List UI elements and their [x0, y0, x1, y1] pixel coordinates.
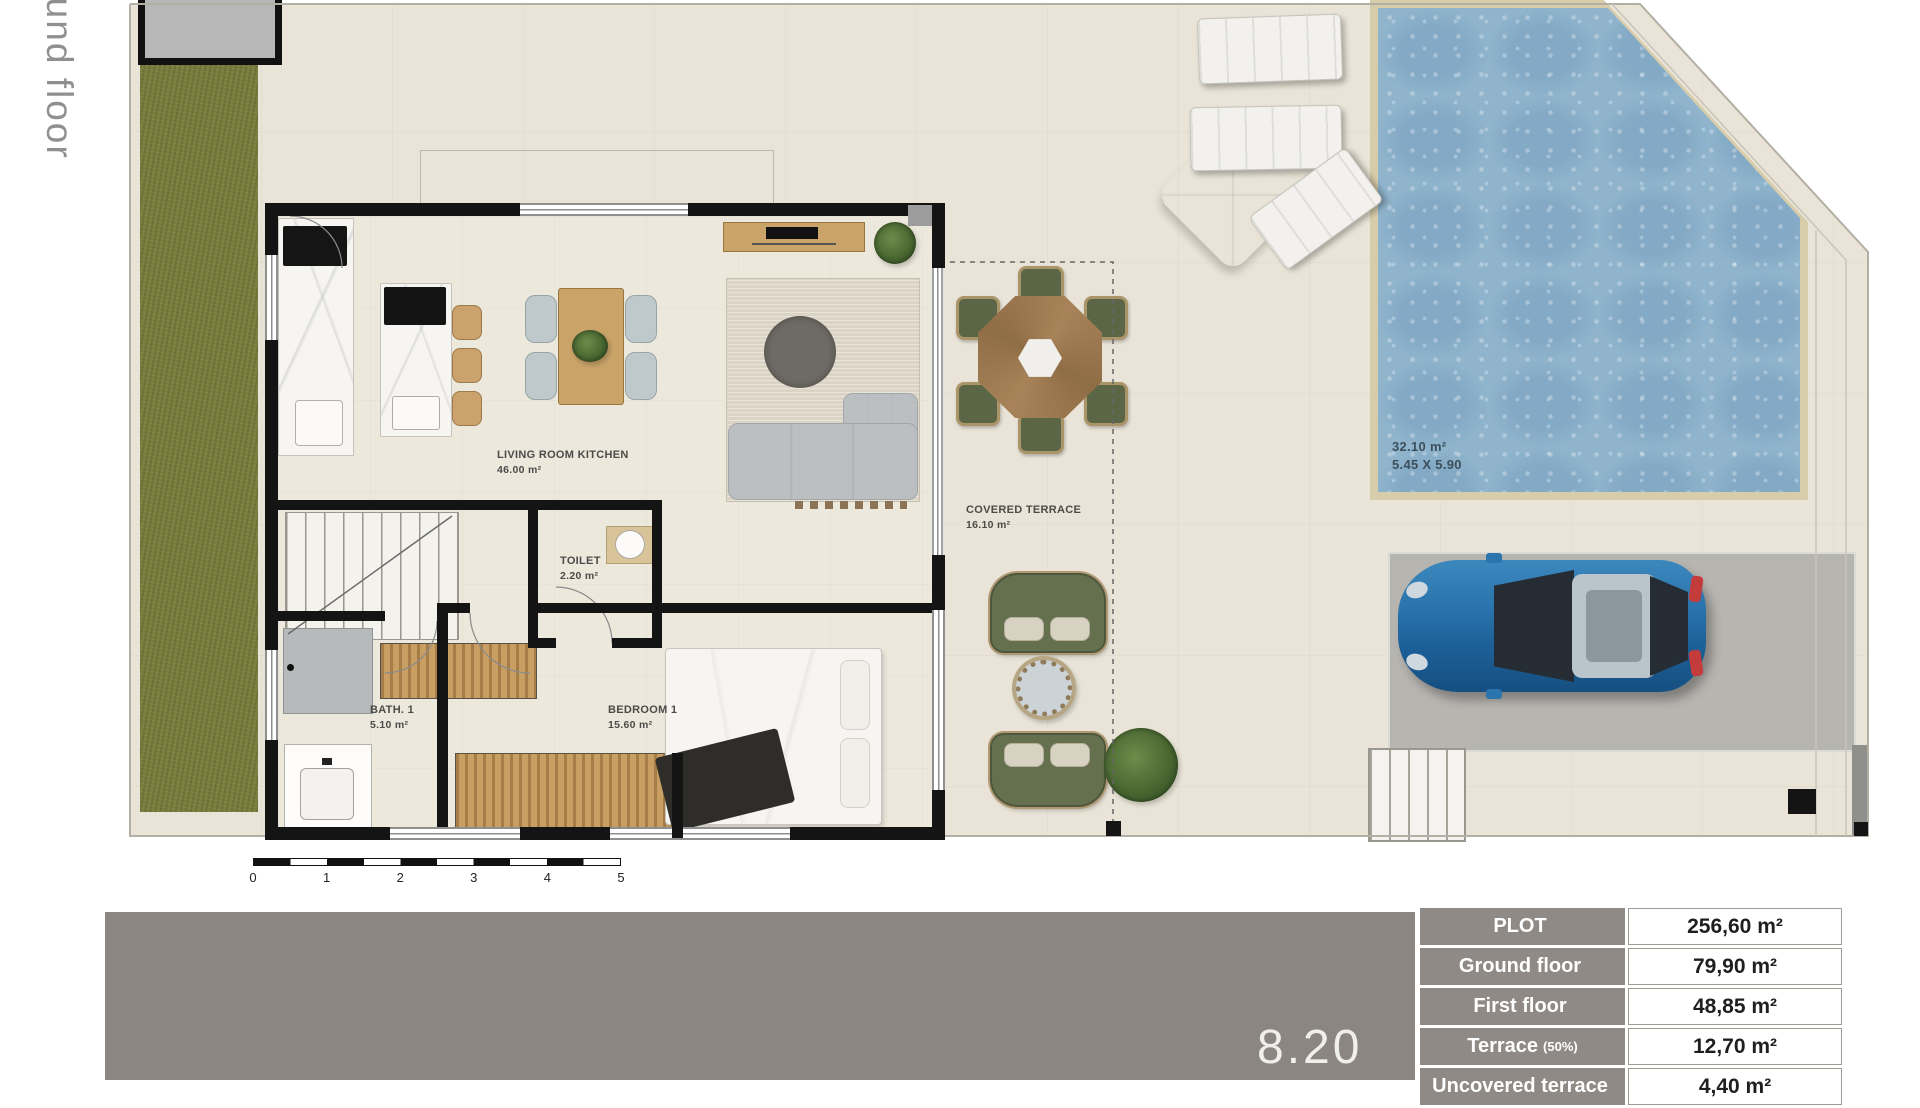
loveseat1-cushion-1 — [1004, 617, 1044, 641]
sun-lounger-1 — [1197, 14, 1343, 85]
bath-sink — [300, 768, 354, 820]
label-living-room: LIVING ROOM KITCHEN 46.00 m² — [497, 448, 629, 478]
table-row: Ground floor 79,90 m² — [1420, 948, 1845, 985]
floor-name-vertical-label: Ground floor — [38, 0, 80, 160]
window-bottom-2 — [610, 827, 790, 840]
dining-chair-3 — [625, 295, 657, 343]
scale-tick-2: 2 — [397, 870, 404, 885]
sun-lounger-2 — [1189, 105, 1342, 172]
car-sunroof — [1586, 590, 1642, 662]
wall-bottom-3 — [790, 827, 945, 840]
side-table-top — [1016, 660, 1072, 716]
entry-utility-block — [138, 0, 282, 65]
wardrobe-top — [380, 643, 537, 699]
window-kitchen — [265, 255, 278, 340]
pillow-1 — [840, 660, 870, 730]
wall-wardrobe-stub — [672, 753, 683, 838]
label-toilet: TOILET 2.20 m² — [560, 554, 601, 584]
table-plant — [572, 330, 608, 362]
label-bedroom: BEDROOM 1 15.60 m² — [608, 703, 677, 733]
bar-stool-1 — [452, 305, 482, 340]
pool-area: 32.10 m² — [1392, 438, 1462, 456]
boundary-block — [1788, 789, 1816, 814]
bar-stool-3 — [452, 391, 482, 426]
table-row: First floor 48,85 m² — [1420, 988, 1845, 1025]
scale-tick-5: 5 — [617, 870, 624, 885]
dining-chair-1 — [525, 295, 557, 343]
pool-dimensions: 5.45 X 5.90 — [1392, 456, 1462, 474]
label-bath: BATH. 1 5.10 m² — [370, 703, 414, 733]
floorplan-page: Ground floor 32.10 m² 5.45 X 5.90 — [0, 0, 1920, 1080]
loveseat-2 — [990, 733, 1106, 807]
scale-bar: 0 1 2 3 4 5 — [253, 856, 621, 890]
terrace-plant — [1104, 728, 1178, 802]
car-windshield — [1494, 570, 1574, 682]
terrace-pillar — [1106, 821, 1121, 836]
grass-strip — [140, 58, 258, 812]
dining-chair-4 — [625, 352, 657, 400]
areas-table: PLOT 256,60 m² Ground floor 79,90 m² Fir… — [1420, 908, 1845, 1108]
wall-toilet-left — [528, 510, 538, 648]
tv-stand-line — [752, 243, 836, 245]
boundary-corner-stub — [1854, 822, 1868, 836]
pillar-top-right — [908, 205, 932, 226]
sofa — [728, 423, 918, 500]
car-mirror-top — [1486, 553, 1502, 563]
swimming-pool — [1378, 8, 1800, 492]
window-bedroom — [932, 610, 945, 790]
title-band: 8.20 — [105, 912, 1415, 1080]
loveseat2-cushion-2 — [1050, 743, 1090, 767]
table-row: Uncovered terrace 4,40 m² — [1420, 1068, 1845, 1105]
shower — [283, 628, 373, 714]
window-top — [520, 203, 688, 216]
scale-tick-1: 1 — [323, 870, 330, 885]
island-sink — [392, 396, 440, 430]
scale-tick-3: 3 — [470, 870, 477, 885]
wall-bath-top — [265, 611, 385, 621]
wall-bottom-2 — [520, 827, 610, 840]
pillow-2 — [840, 738, 870, 808]
kitchen-sink — [295, 400, 343, 446]
wall-bottom-1 — [265, 827, 390, 840]
sliding-glass-door — [932, 268, 943, 555]
model-number: 8.20 — [1257, 1020, 1362, 1075]
wall-toilet-right — [652, 510, 662, 648]
label-covered-terrace: COVERED TERRACE 16.10 m² — [966, 503, 1081, 533]
loveseat-1 — [990, 573, 1106, 653]
window-bath — [265, 650, 278, 740]
loveseat2-cushion-1 — [1004, 743, 1044, 767]
wall-bedroom-top-b — [530, 603, 932, 613]
terrace-side-table — [1012, 656, 1076, 720]
scale-tick-0: 0 — [249, 870, 256, 885]
wall-top-right — [688, 203, 945, 216]
sofa-fringe — [795, 501, 907, 509]
exterior-steps — [1368, 748, 1466, 842]
table-row: PLOT 256,60 m² — [1420, 908, 1845, 945]
loveseat1-cushion-2 — [1050, 617, 1090, 641]
shower-head — [287, 664, 294, 671]
wall-bath-right — [437, 611, 448, 827]
bar-stool-2 — [452, 348, 482, 383]
wall-right-mid — [932, 555, 945, 610]
cooktop — [283, 226, 347, 266]
wall-toilet-bottom-b — [612, 638, 662, 648]
pool-area-label: 32.10 m² 5.45 X 5.90 — [1392, 438, 1462, 474]
wall-top-left — [265, 203, 520, 216]
bath-faucet — [322, 758, 332, 765]
wall-toilet-bottom-a — [528, 638, 556, 648]
round-rug — [764, 316, 836, 388]
car-mirror-bottom — [1486, 689, 1502, 699]
corner-plant — [874, 222, 916, 264]
window-bottom-1 — [390, 827, 520, 840]
island-cooktop — [384, 287, 446, 325]
scale-bar-segments — [253, 858, 621, 866]
dining-chair-2 — [525, 352, 557, 400]
car — [1398, 560, 1706, 692]
scale-tick-4: 4 — [544, 870, 551, 885]
tv — [766, 227, 818, 239]
terrace-chair-4 — [1018, 412, 1064, 454]
wall-stairs-top — [265, 500, 662, 510]
toilet-basin — [615, 530, 645, 559]
table-row: Terrace(50%) 12,70 m² — [1420, 1028, 1845, 1065]
car-rear-window — [1650, 576, 1688, 676]
wall-right-top — [932, 203, 945, 268]
